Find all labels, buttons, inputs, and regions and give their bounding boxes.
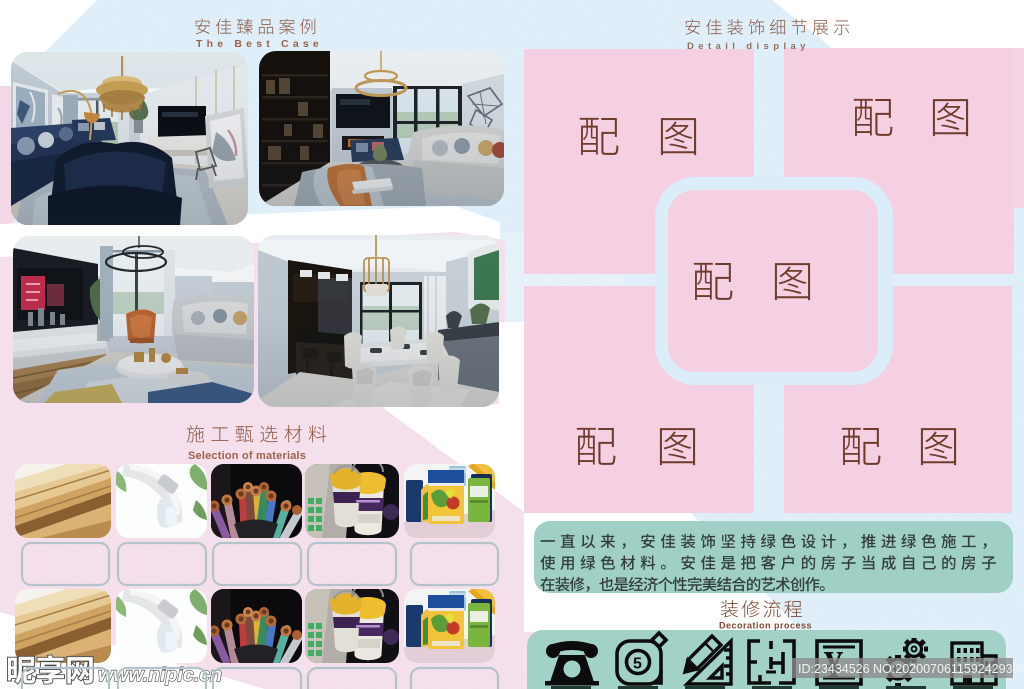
svg-text:Selection of materials: Selection of materials [188, 450, 306, 462]
svg-text:5: 5 [633, 656, 642, 673]
svg-text:Detail display: Detail display [687, 41, 810, 52]
svg-text:ID:23434526 NO:202007061159242: ID:23434526 NO:20200706115924293080 [798, 662, 1024, 676]
svg-text:The Best Case: The Best Case [196, 38, 323, 50]
svg-text:Decoration process: Decoration process [719, 621, 812, 631]
